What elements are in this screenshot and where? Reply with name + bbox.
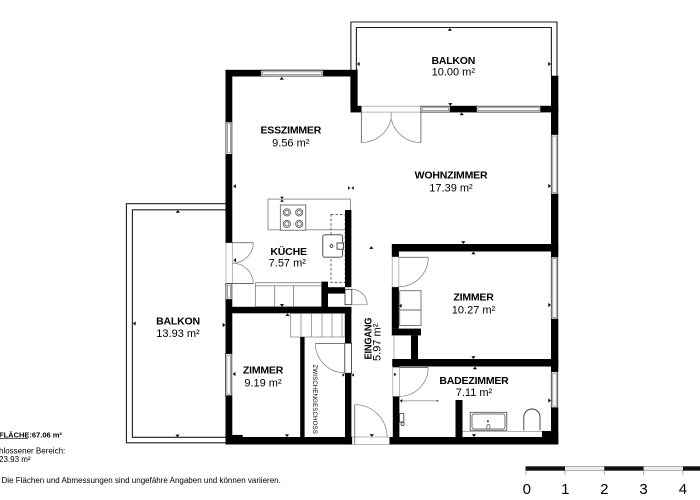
svg-text:ESSZIMMER: ESSZIMMER bbox=[260, 125, 321, 137]
svg-text:1: 1 bbox=[561, 481, 569, 498]
svg-text:BALKON: BALKON bbox=[431, 55, 475, 67]
svg-text:FLÄCHE:67.06 m²: FLÄCHE:67.06 m² bbox=[0, 430, 62, 439]
svg-text:hlossener Bereich:: hlossener Bereich: bbox=[0, 446, 65, 455]
svg-text:KÜCHE: KÜCHE bbox=[270, 245, 307, 258]
svg-text:Die Flächen und Abmessungen si: Die Flächen und Abmessungen sind ungefäh… bbox=[2, 476, 281, 485]
svg-text:BADEZIMMER: BADEZIMMER bbox=[439, 375, 509, 387]
svg-text:BALKON: BALKON bbox=[156, 316, 200, 328]
svg-text:5.97 m²: 5.97 m² bbox=[372, 323, 384, 361]
svg-text:7.57 m²: 7.57 m² bbox=[269, 258, 307, 270]
svg-text:ZIMMER: ZIMMER bbox=[453, 291, 494, 303]
svg-text:0: 0 bbox=[523, 481, 531, 498]
svg-text:10.00 m²: 10.00 m² bbox=[432, 67, 476, 79]
svg-text:2: 2 bbox=[600, 481, 608, 498]
svg-text:13.93 m²: 13.93 m² bbox=[156, 328, 200, 340]
svg-text:ZWISCHENGESCHOSS: ZWISCHENGESCHOSS bbox=[311, 364, 318, 433]
svg-text:9.19 m²: 9.19 m² bbox=[244, 378, 282, 390]
svg-text:9.56 m²: 9.56 m² bbox=[272, 138, 310, 150]
svg-text:10.27 m²: 10.27 m² bbox=[452, 304, 496, 316]
svg-text:23.93 m²: 23.93 m² bbox=[0, 455, 31, 464]
svg-text:7.11 m²: 7.11 m² bbox=[456, 387, 493, 399]
svg-text:3: 3 bbox=[639, 481, 647, 498]
svg-text:4: 4 bbox=[679, 481, 687, 498]
svg-text:WOHNZIMMER: WOHNZIMMER bbox=[415, 170, 488, 182]
svg-text:ZIMMER: ZIMMER bbox=[243, 365, 284, 377]
svg-text:17.39 m²: 17.39 m² bbox=[429, 183, 473, 195]
